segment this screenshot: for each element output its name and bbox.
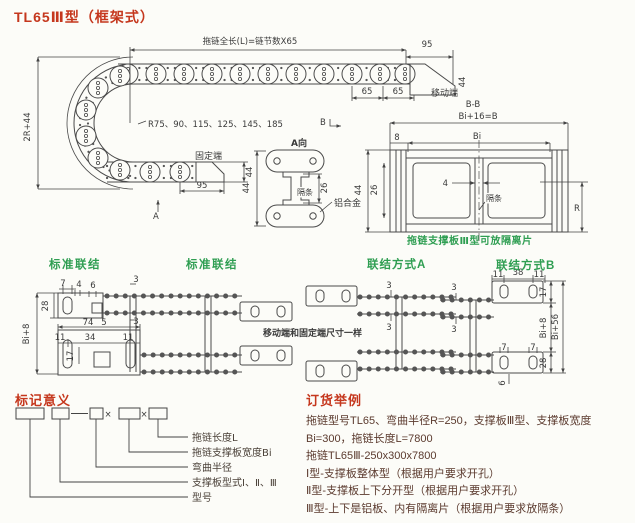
bb-dim-r: R	[574, 204, 580, 214]
ordering-line-1: 拖链型号TL65、弯曲半径R=250，支撑板Ⅲ型、支撑板宽度	[306, 413, 632, 431]
conn-a-dim-3-top: 3	[386, 281, 391, 291]
a-view-drawing	[266, 150, 324, 227]
bb-dim-8: 8	[394, 133, 399, 143]
std-dim-17: 17	[66, 351, 76, 362]
marking-tree	[16, 408, 188, 497]
catalog-page: TL65Ⅲ型（框架式）	[0, 0, 635, 523]
conn-b-dim-28: 28	[539, 358, 549, 369]
dim-95-moving: 95	[422, 40, 433, 50]
ordering-line-5: Ⅱ型-支撑板上下分开型（根据用户要求开孔）	[306, 483, 632, 501]
bb-dim-4: 4	[443, 179, 448, 189]
conn-a-dim-3-bottom: 3	[386, 323, 391, 333]
marking-label-bend-radius: 弯曲半径	[192, 461, 232, 474]
ordering-example-block: 订货举例 拖链型号TL65、弯曲半径R=250，支撑板Ⅲ型、支撑板宽度 Bi=3…	[306, 390, 632, 519]
conn-b-dim-bi8: Bi+8	[539, 318, 549, 339]
connection-method-a-title: 联结方式A	[367, 256, 426, 272]
conn-b-dim-bi56: Bi+56	[551, 314, 561, 340]
std-dim-5: 5	[101, 318, 106, 328]
a-view-title: A向	[291, 137, 307, 149]
dim-95-fixed: 95	[197, 181, 208, 191]
standard-connection-left	[58, 293, 172, 375]
dim-44-moving: 44	[458, 77, 468, 88]
std-dim-34: 34	[85, 333, 96, 343]
conn-b-dim-3-bottom: 3	[451, 325, 456, 335]
bb-dim-44: 44	[354, 185, 364, 196]
standard-connection-right-title: 标准联结	[186, 256, 238, 272]
moving-end-label: 移动端	[431, 87, 458, 99]
bb-dim-overall: Bi+16=B	[458, 112, 497, 122]
standard-connection-left-title: 标准联结	[49, 256, 101, 272]
std-dim-4: 4	[76, 280, 81, 290]
dim-chain-length-formula: 拖链全长(L)=链节数X65	[203, 36, 298, 47]
a-view-dim-26: 26	[320, 183, 330, 194]
marking-label-plate-width: 拖链支撑板宽度Bi	[192, 446, 272, 459]
a-view-material-label: 铝合金	[334, 197, 361, 209]
bb-dim-bi: Bi	[473, 132, 481, 142]
std-dim-bi8: Bi+8	[22, 324, 32, 345]
marking-label-chain-length: 拖链长度L	[192, 431, 238, 444]
conn-b-dim-7-left: 7	[501, 343, 506, 353]
dim-2r-plus-44: 2R+44	[23, 112, 33, 141]
connection-method-b-title: 联结方式B	[496, 257, 555, 273]
ordering-line-3: 拖链TL65Ⅲ-250x300x7800	[306, 448, 632, 466]
marking-label-plate-type: 支撑板型式Ⅰ、Ⅱ、Ⅲ	[192, 476, 277, 489]
bb-title: B-B	[466, 100, 481, 110]
conn-b-dim-17: 17	[539, 287, 549, 298]
conn-b-dim-3-top: 3	[451, 283, 456, 293]
std-dim-3-top: 3	[133, 275, 138, 285]
note-same-size: 移动端和固定端尺寸一样	[263, 327, 362, 339]
section-arrow-b-label: B	[320, 118, 326, 128]
std-dim-74: 74	[83, 318, 94, 328]
bb-section-note: 拖链支撑板Ⅲ型可放隔离片	[407, 232, 532, 247]
marking-label-model: 型号	[192, 491, 212, 504]
std-dim-11-right: 11	[123, 333, 134, 343]
std-dim-7: 7	[60, 279, 65, 289]
std-dim-28: 28	[41, 301, 51, 312]
dim-65-left: 65	[362, 87, 373, 97]
connection-method-b-dimensions	[456, 275, 566, 384]
dim-44-fixed: 44	[245, 167, 255, 178]
ordering-line-2: Bi=300，拖链长度L=7800	[306, 431, 632, 449]
ordering-line-6: Ⅲ型-上下是铝板、内有隔离片（根据用户要求放隔条）	[306, 501, 632, 519]
marking-times-2: ×	[140, 410, 147, 420]
std-dim-3-bottom: 3	[133, 317, 138, 327]
bb-spacer-label: 隔条	[486, 193, 502, 203]
conn-b-dim-7-right: 7	[530, 343, 535, 353]
section-arrow-a-label: A	[153, 212, 159, 222]
dim-65-right: 65	[393, 87, 404, 97]
conn-b-dim-6: 6	[498, 380, 508, 385]
marking-section-title: 标记意义	[15, 390, 71, 409]
bend-radius-options: R75、90、115、125、145、185	[148, 120, 283, 130]
a-view-spacer-label: 隔条	[297, 187, 313, 197]
fixed-end-label: 固定端	[195, 150, 222, 162]
bb-dim-26: 26	[370, 185, 380, 196]
ordering-title: 订货举例	[306, 390, 632, 409]
fixed-end-bracket	[196, 162, 224, 182]
std-dim-11-left: 11	[55, 333, 66, 343]
std-dim-6: 6	[90, 281, 95, 291]
a-view-dim-44: 44	[242, 183, 252, 194]
bb-section-drawing	[390, 140, 568, 243]
ordering-line-4: Ⅰ型-支撑板整体型（根据用户要求开孔）	[306, 466, 632, 484]
marking-times-1: ×	[104, 410, 111, 420]
